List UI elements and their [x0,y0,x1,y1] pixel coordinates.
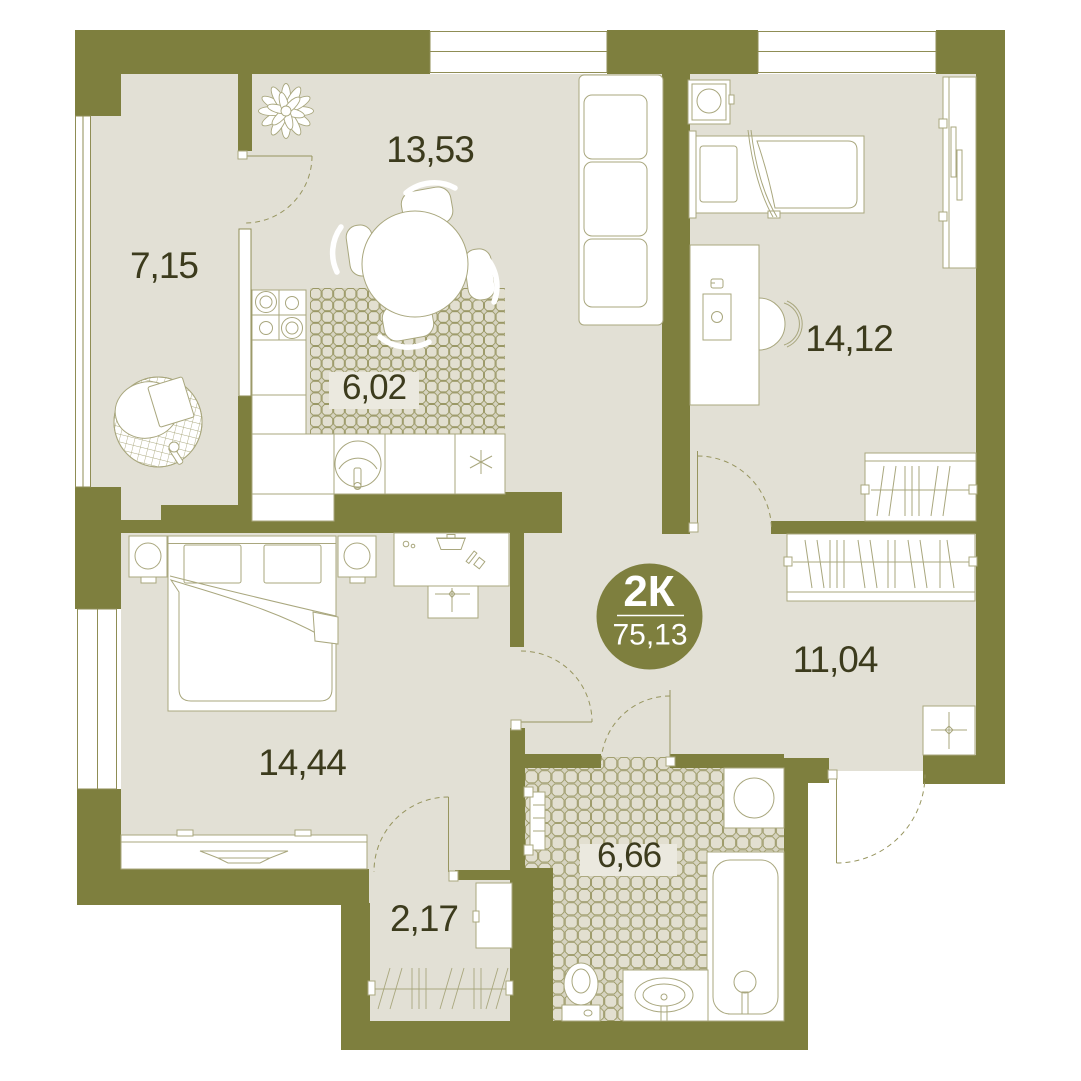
svg-text:75,13: 75,13 [612,619,687,652]
svg-text:7,15: 7,15 [130,245,198,286]
svg-text:2К: 2К [623,567,674,616]
svg-text:13,53: 13,53 [386,129,474,170]
svg-text:14,12: 14,12 [805,318,893,359]
svg-text:14,44: 14,44 [258,742,346,783]
svg-text:11,04: 11,04 [793,639,878,680]
svg-text:6,02: 6,02 [342,368,406,407]
svg-text:6,66: 6,66 [597,836,661,875]
svg-text:2,17: 2,17 [390,898,458,939]
